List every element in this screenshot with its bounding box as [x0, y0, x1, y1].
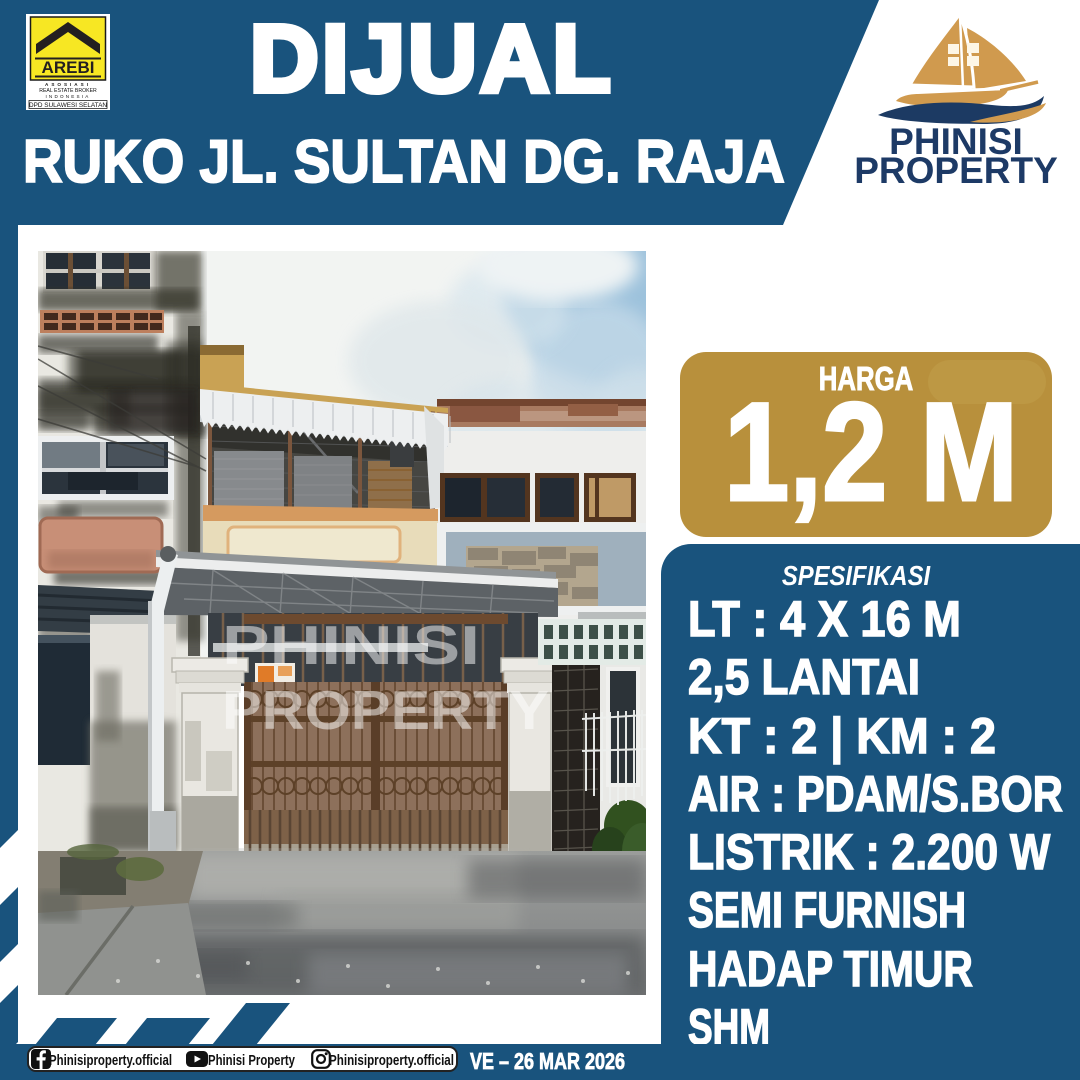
svg-text:Phinisi Property: Phinisi Property	[208, 1052, 295, 1069]
svg-text:Phinisiproperty.official: Phinisiproperty.official	[329, 1052, 454, 1069]
svg-text:PROPERTY: PROPERTY	[222, 679, 549, 741]
svg-text:VE – 26 MAR 2026: VE – 26 MAR 2026	[470, 1048, 625, 1074]
svg-text:Phinisiproperty.official: Phinisiproperty.official	[49, 1052, 172, 1069]
svg-text:PHINISI: PHINISI	[222, 614, 480, 676]
